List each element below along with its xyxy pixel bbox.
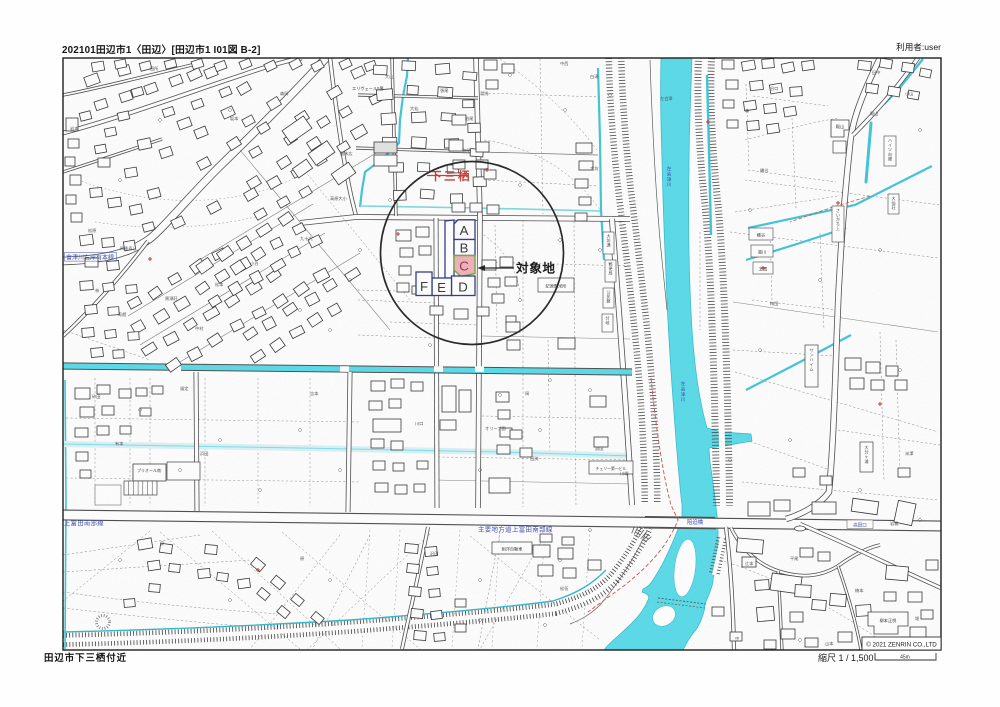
svg-text:利用者:user: 利用者:user [896,41,941,52]
svg-text:45m: 45m [900,655,910,661]
svg-text:田辺市下三栖付近: 田辺市下三栖付近 [44,652,127,663]
svg-text:202101田辺市1〈田辺〉[田辺市1 I01図 B-2]: 202101田辺市1〈田辺〉[田辺市1 I01図 B-2] [62,43,261,56]
svg-text:縮尺 1 / 1,500: 縮尺 1 / 1,500 [818,652,874,663]
svg-text:© 2021 ZENRIN CO.,LTD: © 2021 ZENRIN CO.,LTD [866,641,937,648]
